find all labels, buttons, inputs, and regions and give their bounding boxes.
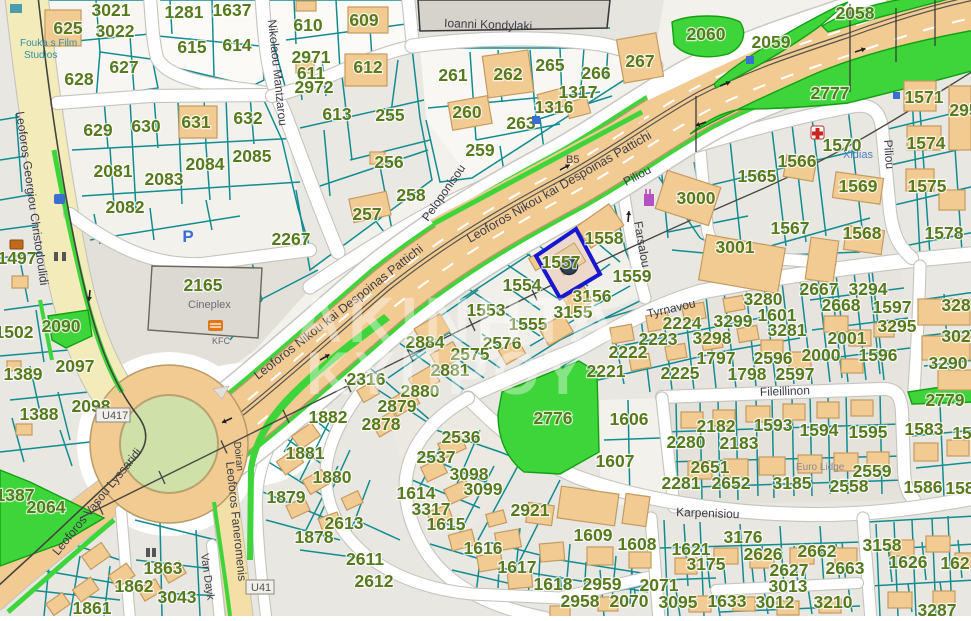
svg-text:1595: 1595 xyxy=(849,422,888,442)
svg-text:295: 295 xyxy=(949,100,971,120)
svg-text:2221: 2221 xyxy=(587,361,626,381)
svg-text:3290: 3290 xyxy=(929,353,968,373)
svg-text:1597: 1597 xyxy=(873,297,912,317)
svg-text:2652: 2652 xyxy=(712,473,751,493)
svg-text:158: 158 xyxy=(945,478,971,498)
svg-text:1609: 1609 xyxy=(574,525,613,545)
svg-text:1574: 1574 xyxy=(907,133,946,153)
svg-text:2597: 2597 xyxy=(776,364,815,384)
svg-text:KFC: KFC xyxy=(212,336,231,346)
svg-text:3021: 3021 xyxy=(92,0,131,20)
svg-text:1559: 1559 xyxy=(613,266,652,286)
svg-text:1569: 1569 xyxy=(839,176,878,196)
svg-text:1617: 1617 xyxy=(498,557,537,577)
svg-text:1571: 1571 xyxy=(905,87,944,107)
svg-text:2082: 2082 xyxy=(106,197,145,217)
svg-text:625: 625 xyxy=(53,18,82,38)
svg-text:260: 260 xyxy=(452,102,481,122)
svg-text:261: 261 xyxy=(438,65,467,85)
svg-text:1862: 1862 xyxy=(115,576,154,596)
svg-text:615: 615 xyxy=(177,37,206,57)
svg-text:1575: 1575 xyxy=(908,176,947,196)
svg-text:2611: 2611 xyxy=(346,549,384,569)
svg-text:1882: 1882 xyxy=(309,407,348,427)
svg-text:1568: 1568 xyxy=(843,223,882,243)
svg-text:627: 627 xyxy=(109,57,138,77)
svg-text:Fileillinon: Fileillinon xyxy=(760,383,810,399)
svg-text:3099: 3099 xyxy=(464,479,503,499)
svg-text:1881: 1881 xyxy=(286,443,325,463)
svg-text:1567: 1567 xyxy=(771,218,810,238)
svg-text:632: 632 xyxy=(233,108,262,128)
svg-text:1608: 1608 xyxy=(618,534,657,554)
svg-text:B5: B5 xyxy=(566,154,579,166)
svg-text:1502: 1502 xyxy=(0,322,34,342)
svg-text:1880: 1880 xyxy=(313,467,352,487)
svg-text:1616: 1616 xyxy=(464,538,503,558)
svg-text:263: 263 xyxy=(506,113,535,133)
svg-text:1607: 1607 xyxy=(596,451,635,471)
svg-text:2183: 2183 xyxy=(720,433,759,453)
svg-text:1497: 1497 xyxy=(0,248,36,268)
svg-text:1316: 1316 xyxy=(535,97,574,117)
svg-text:1615: 1615 xyxy=(427,514,466,534)
svg-text:1879: 1879 xyxy=(267,487,306,507)
svg-text:3095: 3095 xyxy=(659,592,698,612)
svg-text:613: 613 xyxy=(322,104,351,124)
svg-text:628: 628 xyxy=(64,69,93,89)
svg-text:1637: 1637 xyxy=(213,0,252,20)
svg-text:1596: 1596 xyxy=(859,345,898,365)
svg-text:2071: 2071 xyxy=(640,575,679,595)
svg-text:Karpenisiou: Karpenisiou xyxy=(676,505,740,521)
svg-text:612: 612 xyxy=(353,57,382,77)
svg-text:609: 609 xyxy=(349,10,378,30)
svg-text:Piliou: Piliou xyxy=(881,139,897,169)
svg-text:1861: 1861 xyxy=(73,598,112,616)
svg-text:1388: 1388 xyxy=(20,404,59,424)
svg-text:3295: 3295 xyxy=(878,316,917,336)
svg-text:ΚΥΠΡΟΥ: ΚΥΠΡΟΥ xyxy=(306,340,588,407)
svg-text:2958: 2958 xyxy=(561,591,600,611)
svg-text:1626: 1626 xyxy=(889,552,928,572)
svg-text:Cineplex: Cineplex xyxy=(188,299,231,311)
svg-text:2663: 2663 xyxy=(826,558,865,578)
svg-text:2064: 2064 xyxy=(27,497,66,517)
svg-text:302: 302 xyxy=(941,326,970,346)
svg-text:2097: 2097 xyxy=(56,356,95,376)
svg-text:2059: 2059 xyxy=(752,32,791,52)
svg-text:2613: 2613 xyxy=(325,513,364,533)
svg-text:2000: 2000 xyxy=(802,345,841,365)
svg-text:1594: 1594 xyxy=(800,420,839,440)
svg-text:2225: 2225 xyxy=(661,363,700,383)
svg-text:2084: 2084 xyxy=(186,154,225,174)
svg-text:1389: 1389 xyxy=(4,364,43,384)
svg-text:2085: 2085 xyxy=(233,146,272,166)
svg-text:1618: 1618 xyxy=(534,574,573,594)
svg-text:265: 265 xyxy=(535,55,564,75)
svg-text:2081: 2081 xyxy=(94,161,133,181)
svg-text:P: P xyxy=(182,227,193,246)
svg-text:Fouka s Film: Fouka s Film xyxy=(20,38,77,49)
svg-text:255: 255 xyxy=(375,105,404,125)
svg-text:3043: 3043 xyxy=(158,587,197,607)
svg-text:162: 162 xyxy=(940,553,969,573)
svg-text:2090: 2090 xyxy=(42,316,81,336)
svg-text:2959: 2959 xyxy=(583,574,622,594)
svg-text:3001: 3001 xyxy=(716,237,755,257)
svg-text:2060: 2060 xyxy=(687,24,726,44)
svg-text:2165: 2165 xyxy=(184,275,223,295)
svg-text:U41: U41 xyxy=(251,582,271,594)
svg-text:631: 631 xyxy=(181,112,210,132)
svg-text:1606: 1606 xyxy=(610,409,649,429)
svg-text:1593: 1593 xyxy=(754,415,793,435)
svg-text:3281: 3281 xyxy=(768,320,807,340)
svg-text:1565: 1565 xyxy=(738,166,777,186)
svg-text:2779: 2779 xyxy=(926,390,965,410)
svg-text:2267: 2267 xyxy=(272,229,311,249)
svg-text:1578: 1578 xyxy=(925,223,964,243)
svg-text:1633: 1633 xyxy=(708,591,747,611)
svg-text:3012: 3012 xyxy=(756,592,795,612)
svg-text:3210: 3210 xyxy=(814,592,853,612)
svg-text:3000: 3000 xyxy=(677,188,716,208)
svg-text:Studios: Studios xyxy=(24,50,57,61)
svg-text:257: 257 xyxy=(352,204,381,224)
svg-text:3175: 3175 xyxy=(687,554,726,574)
svg-text:15: 15 xyxy=(952,423,971,443)
svg-text:256: 256 xyxy=(374,152,403,172)
svg-text:266: 266 xyxy=(581,63,610,83)
svg-text:2558: 2558 xyxy=(830,476,869,496)
svg-text:3287: 3287 xyxy=(918,600,957,616)
svg-text:1558: 1558 xyxy=(585,228,624,248)
svg-text:3185: 3185 xyxy=(773,473,812,493)
svg-text:2972: 2972 xyxy=(295,77,334,97)
svg-text:2083: 2083 xyxy=(145,169,184,189)
svg-text:2536: 2536 xyxy=(442,427,481,447)
svg-text:267: 267 xyxy=(625,51,654,71)
svg-text:Xidias: Xidias xyxy=(843,149,873,161)
svg-text:258: 258 xyxy=(396,185,425,205)
svg-text:630: 630 xyxy=(131,116,160,136)
svg-text:629: 629 xyxy=(83,120,112,140)
svg-text:3022: 3022 xyxy=(96,21,135,41)
svg-text:2777: 2777 xyxy=(811,83,850,103)
svg-text:1583: 1583 xyxy=(905,419,944,439)
svg-text:1586: 1586 xyxy=(904,477,943,497)
svg-text:328: 328 xyxy=(941,295,970,315)
svg-text:2921: 2921 xyxy=(511,500,550,520)
svg-text:2776: 2776 xyxy=(534,408,573,428)
svg-text:2058: 2058 xyxy=(836,3,875,23)
svg-text:262: 262 xyxy=(493,64,522,84)
svg-text:614: 614 xyxy=(222,35,251,55)
svg-text:259: 259 xyxy=(465,140,494,160)
svg-text:2280: 2280 xyxy=(667,432,706,452)
svg-text:1557: 1557 xyxy=(542,252,581,272)
svg-text:2878: 2878 xyxy=(362,414,401,434)
svg-text:1566: 1566 xyxy=(778,151,817,171)
svg-text:2281: 2281 xyxy=(662,473,701,493)
svg-text:Euro Lidge: Euro Lidge xyxy=(796,462,845,473)
svg-text:1863: 1863 xyxy=(144,558,183,578)
svg-text:1281: 1281 xyxy=(165,2,204,22)
svg-text:2612: 2612 xyxy=(355,571,394,591)
svg-text:2668: 2668 xyxy=(822,295,861,315)
svg-text:U417: U417 xyxy=(102,410,128,422)
svg-text:610: 610 xyxy=(293,15,322,35)
